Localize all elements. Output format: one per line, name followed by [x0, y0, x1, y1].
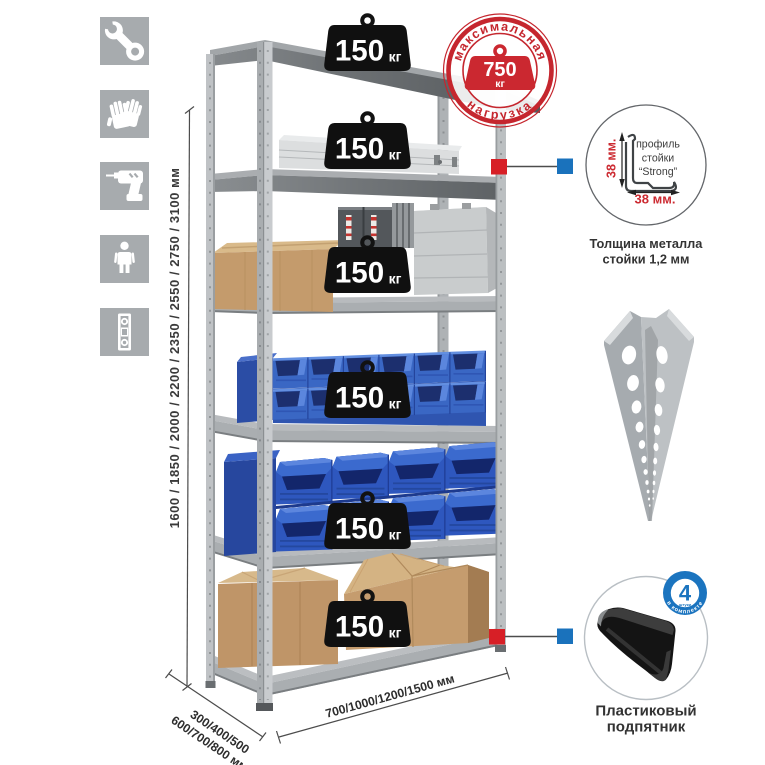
svg-text:кг: кг — [495, 78, 505, 90]
svg-text:Пластиковый: Пластиковый — [595, 703, 696, 720]
svg-text:38 мм.: 38 мм. — [635, 192, 676, 207]
svg-text:Толщина металла: Толщина металла — [590, 236, 704, 251]
svg-text:38 мм.: 38 мм. — [605, 139, 619, 178]
svg-text:стойки: стойки — [642, 153, 674, 165]
svg-text:профиль: профиль — [636, 139, 680, 151]
svg-text:штуки: штуки — [679, 602, 692, 607]
svg-text:1600 / 1850 / 2000 / 2200 / 23: 1600 / 1850 / 2000 / 2200 / 2350 / 2550 … — [167, 168, 182, 529]
svg-text:стойки 1,2 мм: стойки 1,2 мм — [602, 252, 689, 267]
svg-text:“Strong”: “Strong” — [639, 166, 678, 178]
svg-text:подпятник: подпятник — [607, 719, 686, 736]
